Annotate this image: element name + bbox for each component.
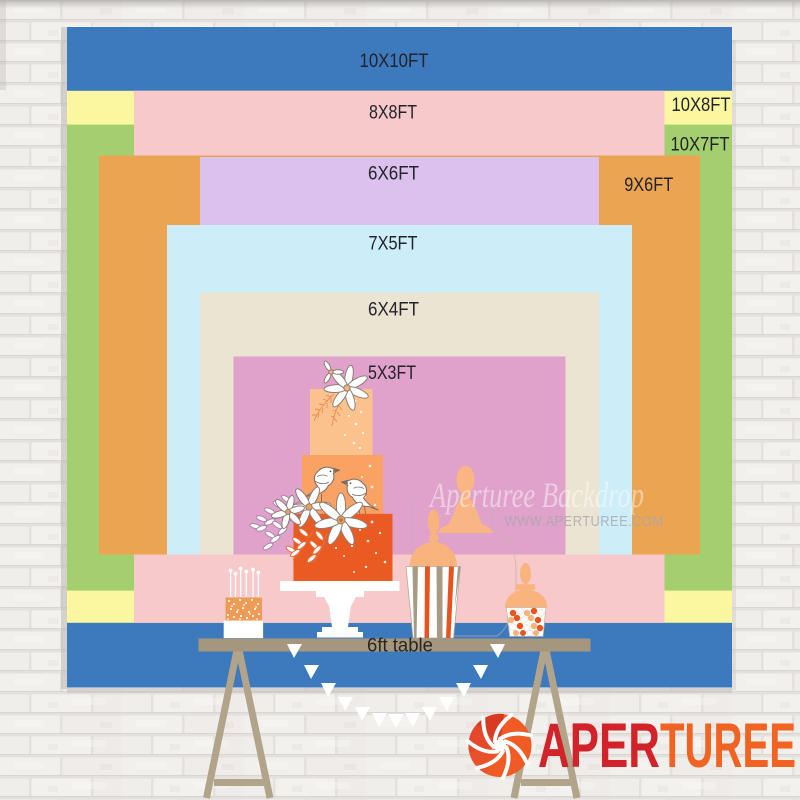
svg-text:8X8FT: 8X8FT — [369, 102, 417, 124]
svg-text:6ft table: 6ft table — [367, 636, 433, 657]
svg-text:5X3FT: 5X3FT — [368, 362, 416, 384]
svg-text:WWW.APERTUREE.COM: WWW.APERTUREE.COM — [505, 513, 664, 530]
svg-text:TUREE: TUREE — [660, 711, 796, 781]
svg-text:6X6FT: 6X6FT — [368, 163, 419, 185]
svg-text:9X6FT: 9X6FT — [624, 174, 673, 196]
svg-text:10X10FT: 10X10FT — [360, 50, 429, 72]
svg-text:7X5FT: 7X5FT — [369, 233, 418, 255]
svg-text:Aperturee Backdrop: Aperturee Backdrop — [429, 475, 644, 515]
svg-text:6X4FT: 6X4FT — [368, 299, 419, 321]
svg-text:APER: APER — [538, 711, 660, 781]
svg-text:10X8FT: 10X8FT — [672, 94, 731, 116]
svg-text:10X7FT: 10X7FT — [671, 134, 730, 156]
